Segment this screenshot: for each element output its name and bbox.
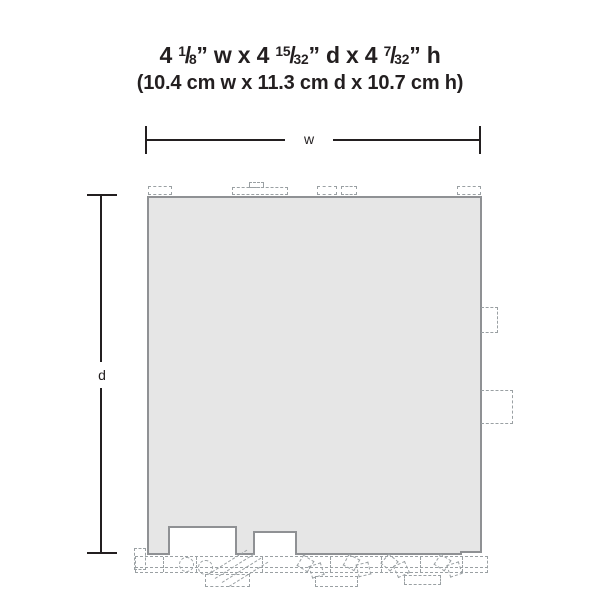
- loading-dock-notch-left: [168, 526, 237, 555]
- dimension-diagram: 4 1/8” w x 4 15/32” d x 4 7/32” h (10.4 …: [0, 0, 600, 600]
- roof-detail-outline: [249, 182, 264, 188]
- depth-dim-label: d: [87, 367, 117, 383]
- corner-step: [460, 551, 482, 555]
- platform-divider: [330, 557, 331, 572]
- dock-box-outline: [315, 576, 358, 587]
- platform-divider: [163, 557, 164, 572]
- dock-box-outline: [205, 574, 250, 587]
- title-imperial-dimensions: 4 1/8” w x 4 15/32” d x 4 7/32” h: [0, 42, 600, 69]
- wall-attachment-outline-upper: [481, 307, 498, 333]
- width-dim-line-left: [145, 139, 285, 141]
- roof-detail-outline: [148, 186, 172, 195]
- width-dim-line-right: [333, 139, 481, 141]
- depth-dim-line-top: [100, 194, 102, 362]
- roof-detail-outline: [341, 186, 357, 195]
- width-dim-label: w: [285, 131, 333, 147]
- platform-divider: [462, 557, 463, 572]
- depth-dim-tick-top: [87, 194, 117, 196]
- loading-dock-notch-right: [253, 531, 297, 555]
- crate-outline: [356, 562, 372, 578]
- roof-detail-outline: [457, 186, 481, 195]
- depth-dim-line-bottom: [100, 388, 102, 554]
- depth-dim-tick-bottom: [87, 552, 117, 554]
- roof-detail-outline: [317, 186, 337, 195]
- roof-detail-outline: [232, 187, 288, 195]
- title-metric-dimensions: (10.4 cm w x 11.3 cm d x 10.7 cm h): [0, 72, 600, 95]
- wall-attachment-outline-lower: [481, 390, 513, 424]
- dock-box-outline: [404, 575, 441, 585]
- title-block: 4 1/8” w x 4 15/32” d x 4 7/32” h (10.4 …: [0, 42, 600, 95]
- platform-divider: [196, 557, 197, 572]
- barrel-outline: [179, 557, 194, 572]
- platform-divider: [420, 557, 421, 572]
- dock-edge-outline: [134, 548, 146, 570]
- building-footprint: [147, 196, 482, 555]
